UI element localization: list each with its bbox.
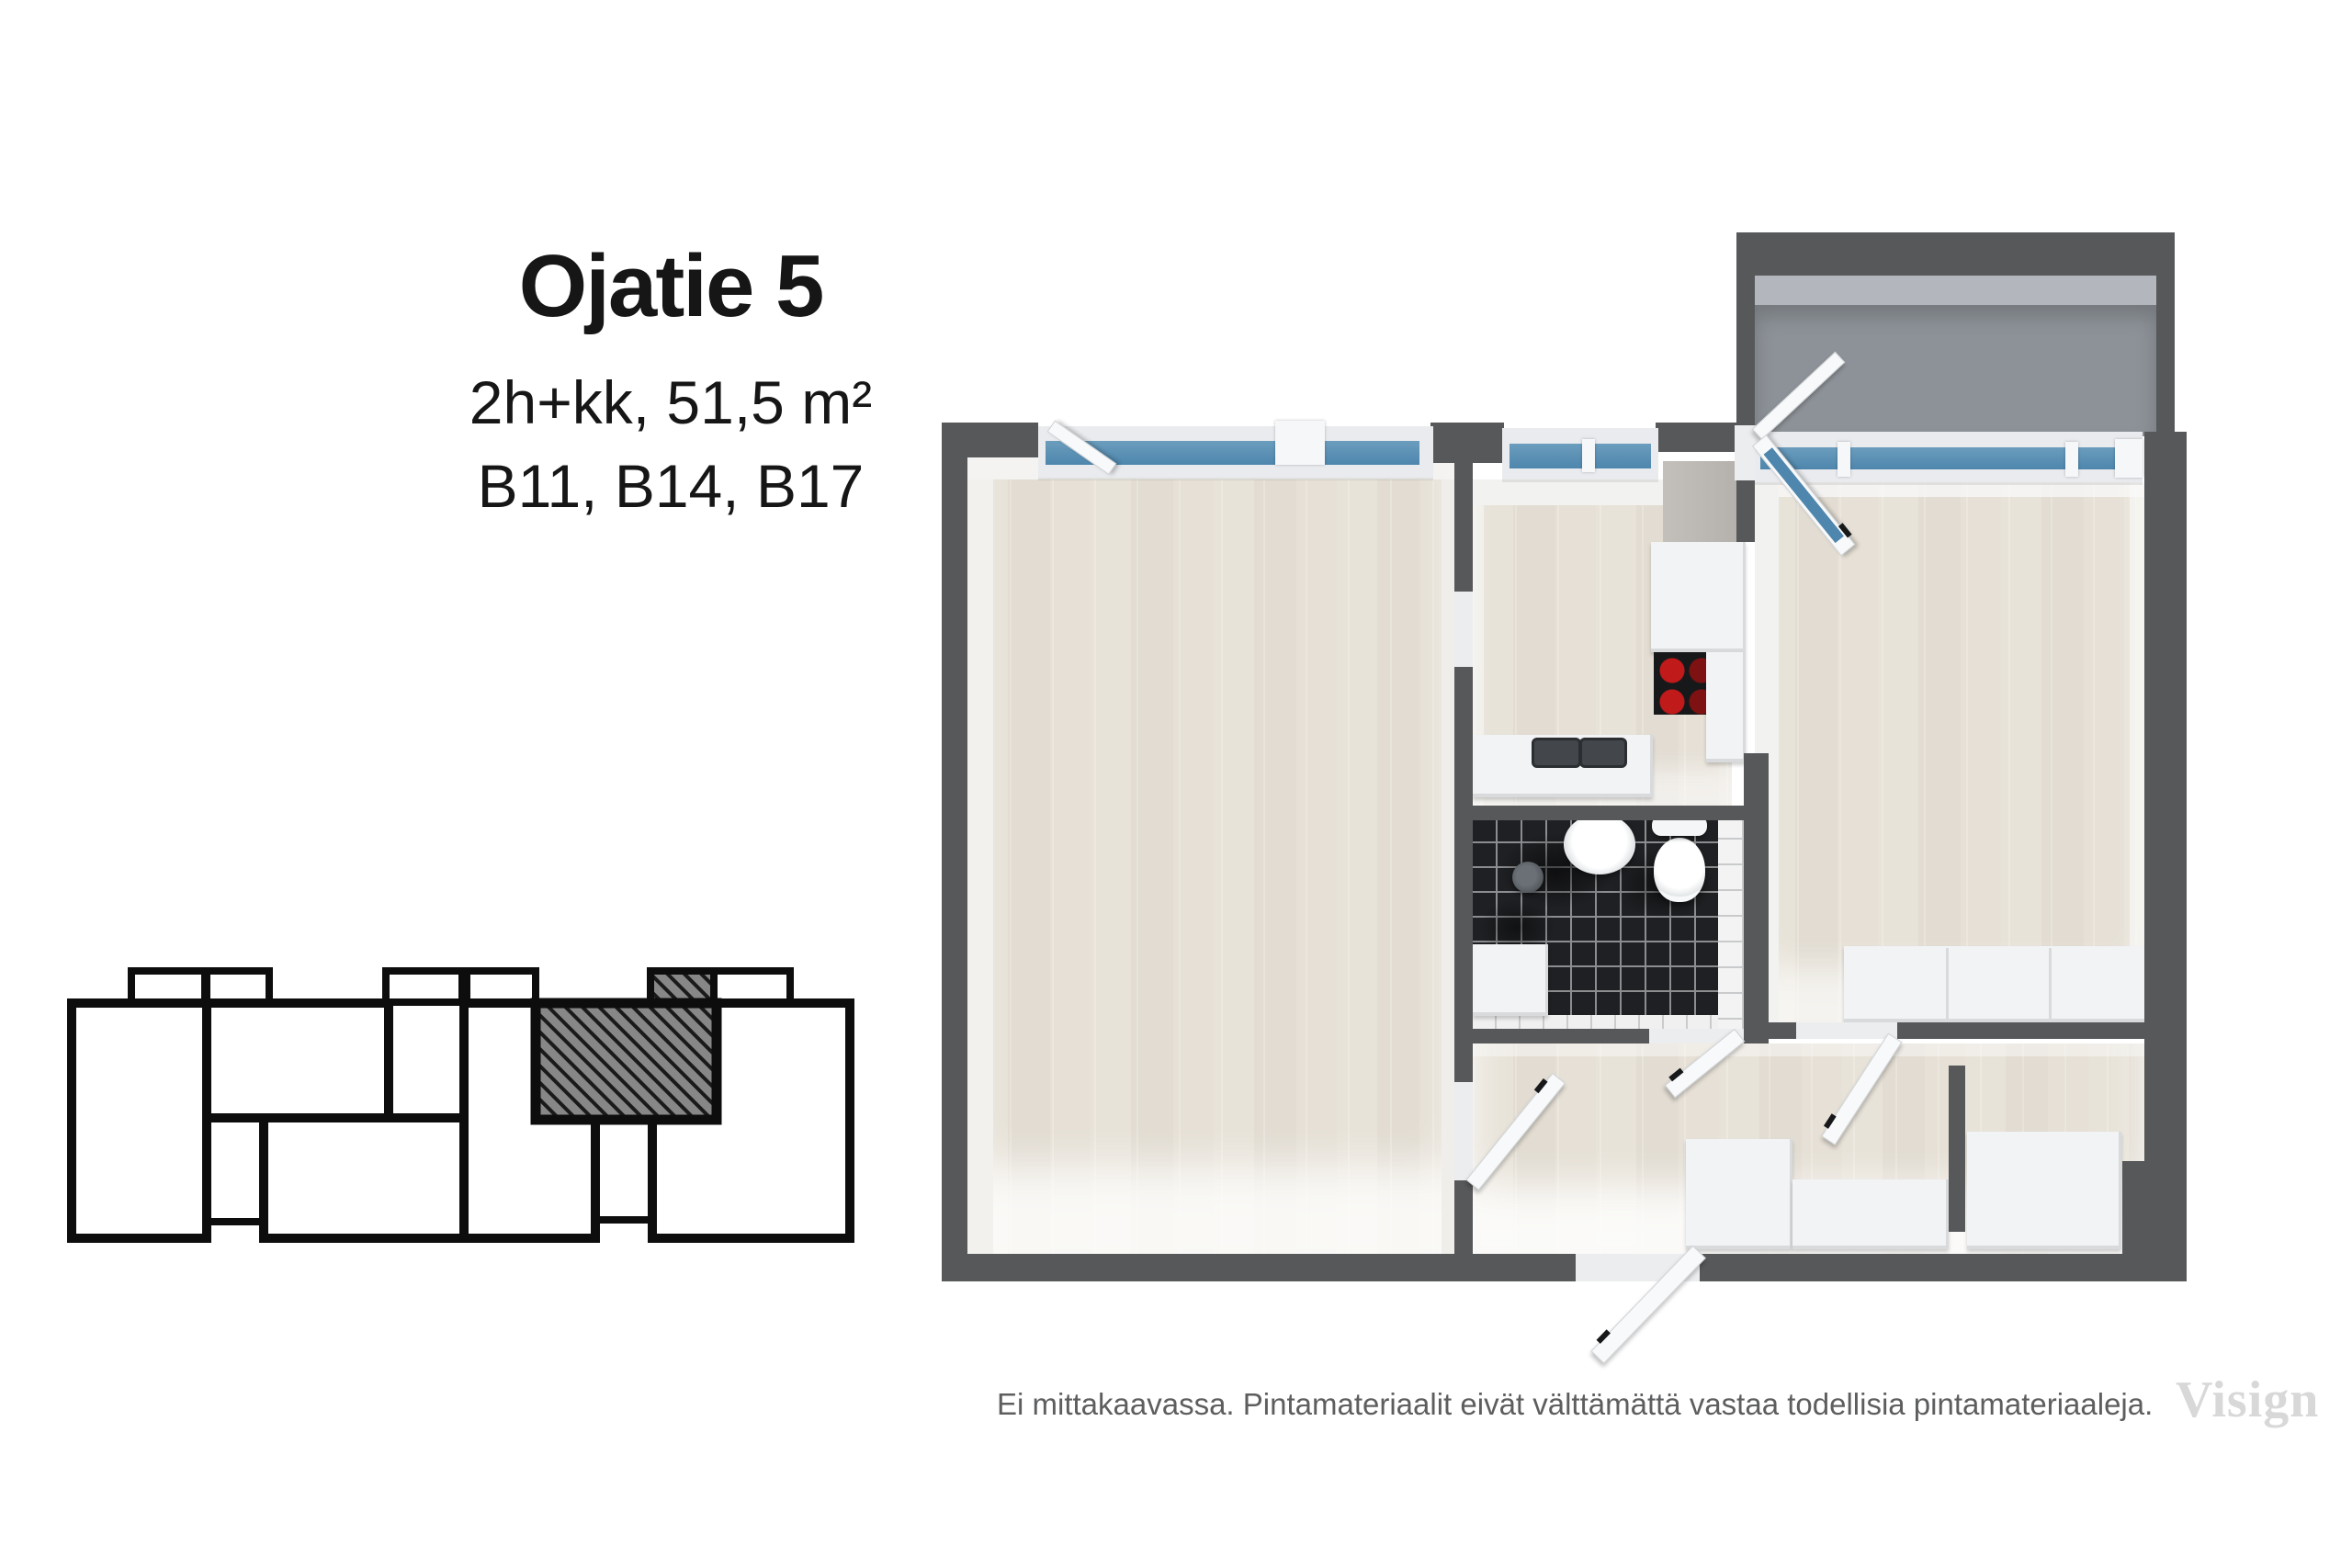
bathroom-wall-bottom [1454, 1029, 1649, 1043]
bedroom-door-threshold [1796, 1022, 1897, 1039]
outer-wall-left [942, 423, 967, 1281]
kitchen-window-mullion [1582, 439, 1595, 472]
living-hall-wall-post [1454, 1180, 1473, 1254]
outer-wall-bottom-left [942, 1254, 1576, 1281]
balcony-door-threshold [1735, 425, 1757, 480]
bathroom-wall-top [1454, 806, 1769, 820]
toilet-bowl [1654, 838, 1705, 902]
stove-cooktop [1654, 652, 1706, 715]
balcony-wall-top [1736, 232, 2175, 276]
bathroom-tile-sill [1473, 1015, 1718, 1029]
bedroom-window-mullion-2 [2065, 442, 2078, 477]
outer-wall-bottom-right [1700, 1254, 2187, 1281]
balcony-wall-left [1736, 276, 1755, 427]
scale-disclaimer: Ei mittakaavassa. Pintamateriaalit eivät… [997, 1387, 2153, 1422]
hall-wardrobe-1 [1686, 1139, 1792, 1249]
kitchen-upper-cabinet [1663, 461, 1746, 542]
balcony-wall-face [1755, 276, 2156, 305]
visign-watermark-logo: Visign [2176, 1371, 2319, 1429]
bathroom-wall-tiles [1718, 820, 1744, 1043]
apartment-floorplan [0, 0, 2352, 1568]
hall-wardrobe-3 [1967, 1132, 2121, 1249]
bedroom-hall-wall-stub [1769, 1022, 1796, 1039]
bedroom-hall-wall [1897, 1022, 2156, 1039]
washing-machine [1473, 944, 1548, 1016]
balcony-wall-right [2156, 276, 2175, 436]
bedroom-window-end [2115, 439, 2143, 478]
kitchen-sink-basin-2 [1579, 738, 1627, 768]
living-window-mullion [1275, 421, 1325, 465]
shower-head [1512, 862, 1543, 893]
kitchen-tall-cabinet [1651, 542, 1746, 652]
bedroom-window-mullion-1 [1837, 442, 1850, 477]
kitchen-cabinet-2 [1706, 652, 1746, 762]
living-door-threshold [1454, 1082, 1473, 1180]
living-room-floor [967, 457, 1454, 1254]
bathroom-wall-right [1744, 753, 1769, 1043]
living-kitchen-wall-lower [1454, 667, 1473, 1082]
bedroom-wardrobe [1844, 946, 2153, 1022]
hall-closet-wall [1949, 1066, 1965, 1232]
living-kitchen-wall-upper [1454, 463, 1473, 592]
top-wall-segment-2 [1656, 423, 1747, 452]
kitchen-window [1510, 444, 1651, 468]
kitchen-sink-basin-1 [1532, 738, 1581, 768]
bedroom-floor [1755, 482, 2144, 1022]
floorplan-page: Ojatie 5 2h+kk, 51,5 m² B11, B14, B17 [0, 0, 2352, 1568]
hall-wardrobe-2 [1792, 1179, 1949, 1249]
wardrobe-divider-1 [1946, 948, 1949, 1021]
bathroom-sink [1564, 814, 1635, 874]
kitchen-opening-threshold [1454, 592, 1473, 667]
outer-wall-right [2144, 432, 2187, 1281]
wardrobe-divider-2 [2049, 948, 2052, 1021]
top-wall-segment-1 [1430, 423, 1504, 463]
outer-wall-top-corner [942, 423, 1038, 457]
